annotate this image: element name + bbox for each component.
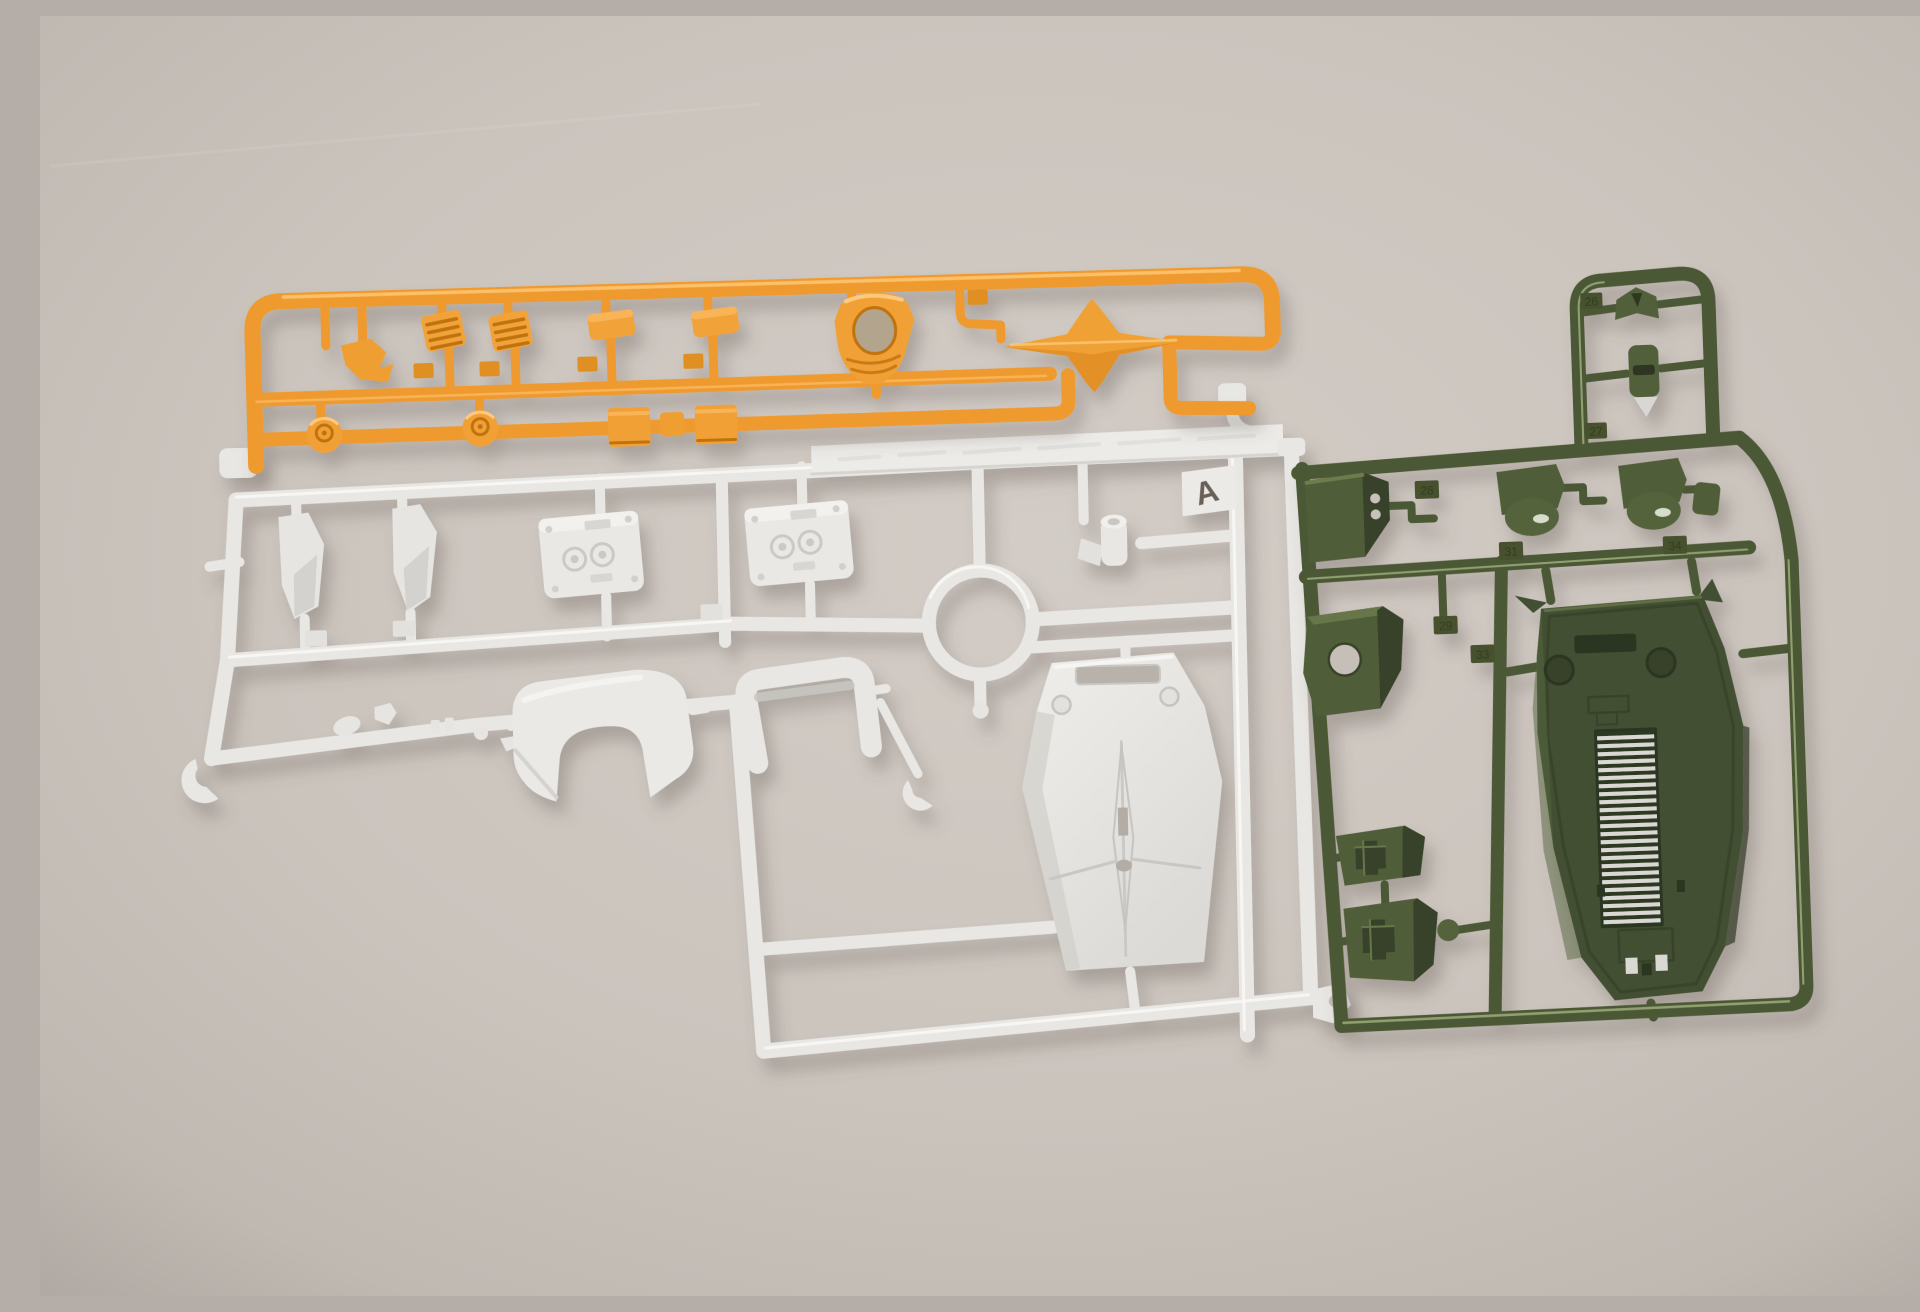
molded-number: 31 <box>1504 544 1518 558</box>
molded-number: 29 <box>1439 619 1453 633</box>
coupler-block-part <box>660 412 685 437</box>
molded-number: 27 <box>1589 424 1603 438</box>
molded-number: 26 <box>1585 295 1599 309</box>
molded-number: 28 <box>1420 483 1434 497</box>
molded-number: 34 <box>1668 539 1682 553</box>
ammo-pouch-part-2 <box>1343 898 1440 984</box>
green-joint-top <box>1277 438 1305 457</box>
photo-canvas: A <box>40 16 1920 1296</box>
small-coupler-part <box>1692 482 1721 517</box>
thruster-box-part-2 <box>695 404 738 444</box>
riveted-panel-part-1 <box>538 510 645 599</box>
gate-letter-tab: A <box>1182 465 1237 516</box>
molded-number: 33 <box>1476 648 1490 662</box>
riveted-panel-part-2 <box>744 500 855 587</box>
vented-plate-part-2 <box>488 309 534 352</box>
model-kit-sprues-photo: A <box>40 16 1920 1296</box>
thruster-box-part-1 <box>608 407 651 447</box>
